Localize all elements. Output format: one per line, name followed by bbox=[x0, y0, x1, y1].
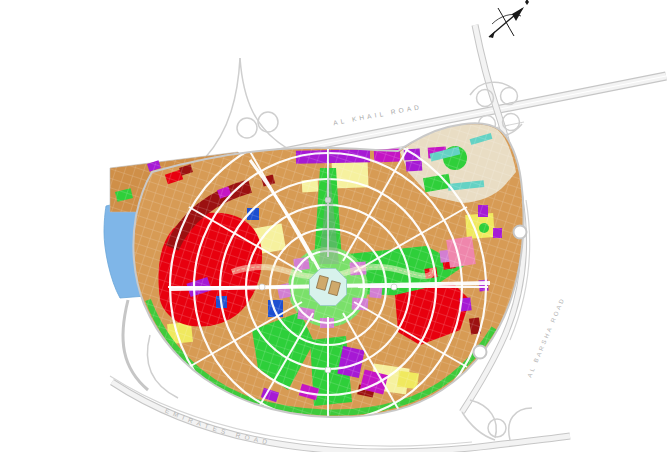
ramp bbox=[123, 300, 148, 390]
parcel-grid-texture bbox=[100, 118, 530, 428]
compass-dart bbox=[512, 7, 524, 21]
ramp bbox=[509, 408, 532, 440]
al-barsha-road-label: AL BARSHA ROAD bbox=[526, 296, 566, 379]
ramp bbox=[240, 58, 290, 150]
central-plaza bbox=[310, 269, 347, 306]
ramp bbox=[205, 58, 240, 158]
ramp bbox=[470, 400, 496, 438]
ramp bbox=[462, 412, 495, 440]
west-interchange bbox=[205, 58, 290, 158]
barsha-roundabout bbox=[514, 226, 527, 239]
compass-north-arrow-icon bbox=[489, 0, 529, 38]
masterplan-map: AL KHAIL ROAD AL BARSHA ROAD EMIRATES RO… bbox=[0, 0, 668, 452]
loop-ramp bbox=[237, 118, 257, 138]
roundabout bbox=[259, 284, 265, 290]
compass-tip-mark bbox=[525, 0, 529, 5]
southeast-interchange bbox=[462, 400, 532, 440]
masterplan-svg: AL KHAIL ROAD AL BARSHA ROAD EMIRATES RO… bbox=[0, 0, 668, 452]
loop-ramp bbox=[258, 112, 278, 132]
compass-feather bbox=[489, 31, 495, 38]
barsha-roundabout bbox=[474, 346, 487, 359]
emirates-road-label: EMIRATES ROAD bbox=[164, 406, 272, 445]
roundabout bbox=[325, 367, 331, 373]
compass-cross bbox=[498, 8, 514, 36]
loop-ramp bbox=[503, 114, 520, 131]
roundabout bbox=[391, 284, 397, 290]
plaza-octagon bbox=[310, 269, 347, 306]
